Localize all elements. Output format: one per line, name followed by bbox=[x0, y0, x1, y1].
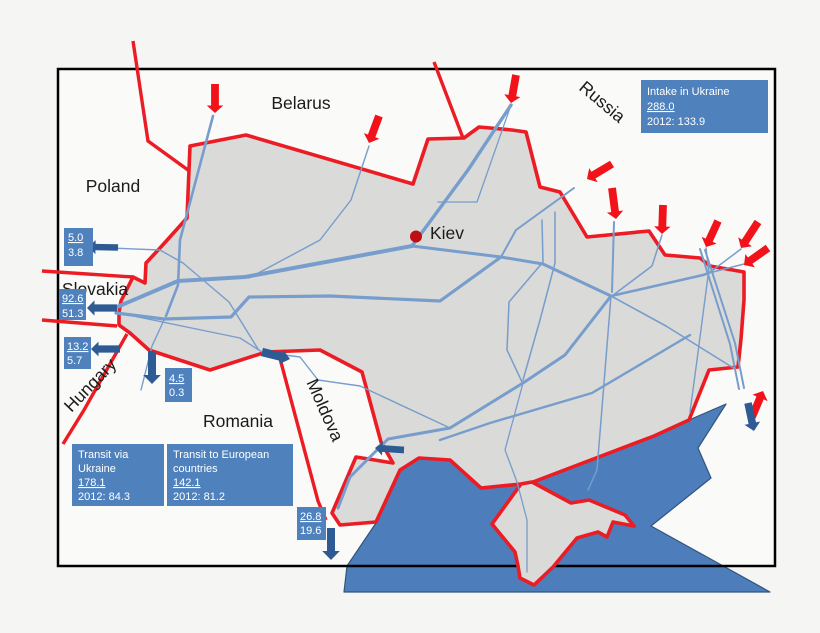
svg-text:Ukraine: Ukraine bbox=[78, 463, 116, 475]
svg-text:Transit to European: Transit to European bbox=[173, 449, 269, 461]
svg-text:2012: 81.2: 2012: 81.2 bbox=[173, 491, 225, 503]
svg-text:51.3: 51.3 bbox=[62, 308, 83, 320]
svg-text:countries: countries bbox=[173, 463, 218, 475]
svg-text:3.8: 3.8 bbox=[68, 247, 83, 259]
svg-text:Intake in Ukraine: Intake in Ukraine bbox=[647, 86, 730, 98]
svg-text:4.5: 4.5 bbox=[169, 373, 184, 385]
svg-text:142.1: 142.1 bbox=[173, 477, 201, 489]
svg-text:Transit via: Transit via bbox=[78, 449, 129, 461]
svg-text:92.6: 92.6 bbox=[62, 293, 83, 305]
svg-text:Romania: Romania bbox=[203, 411, 273, 431]
svg-text:288.0: 288.0 bbox=[647, 101, 675, 113]
svg-text:178.1: 178.1 bbox=[78, 477, 106, 489]
svg-text:Kiev: Kiev bbox=[430, 223, 464, 243]
svg-text:Poland: Poland bbox=[86, 176, 141, 196]
svg-text:Belarus: Belarus bbox=[271, 93, 331, 113]
svg-text:2012: 133.9: 2012: 133.9 bbox=[647, 116, 705, 128]
svg-text:0.3: 0.3 bbox=[169, 387, 184, 399]
svg-text:19.6: 19.6 bbox=[300, 525, 321, 537]
svg-text:5.0: 5.0 bbox=[68, 232, 83, 244]
svg-text:5.7: 5.7 bbox=[67, 355, 82, 367]
svg-text:26.8: 26.8 bbox=[300, 511, 321, 523]
svg-text:13.2: 13.2 bbox=[67, 341, 88, 353]
svg-text:2012: 84.3: 2012: 84.3 bbox=[78, 491, 130, 503]
